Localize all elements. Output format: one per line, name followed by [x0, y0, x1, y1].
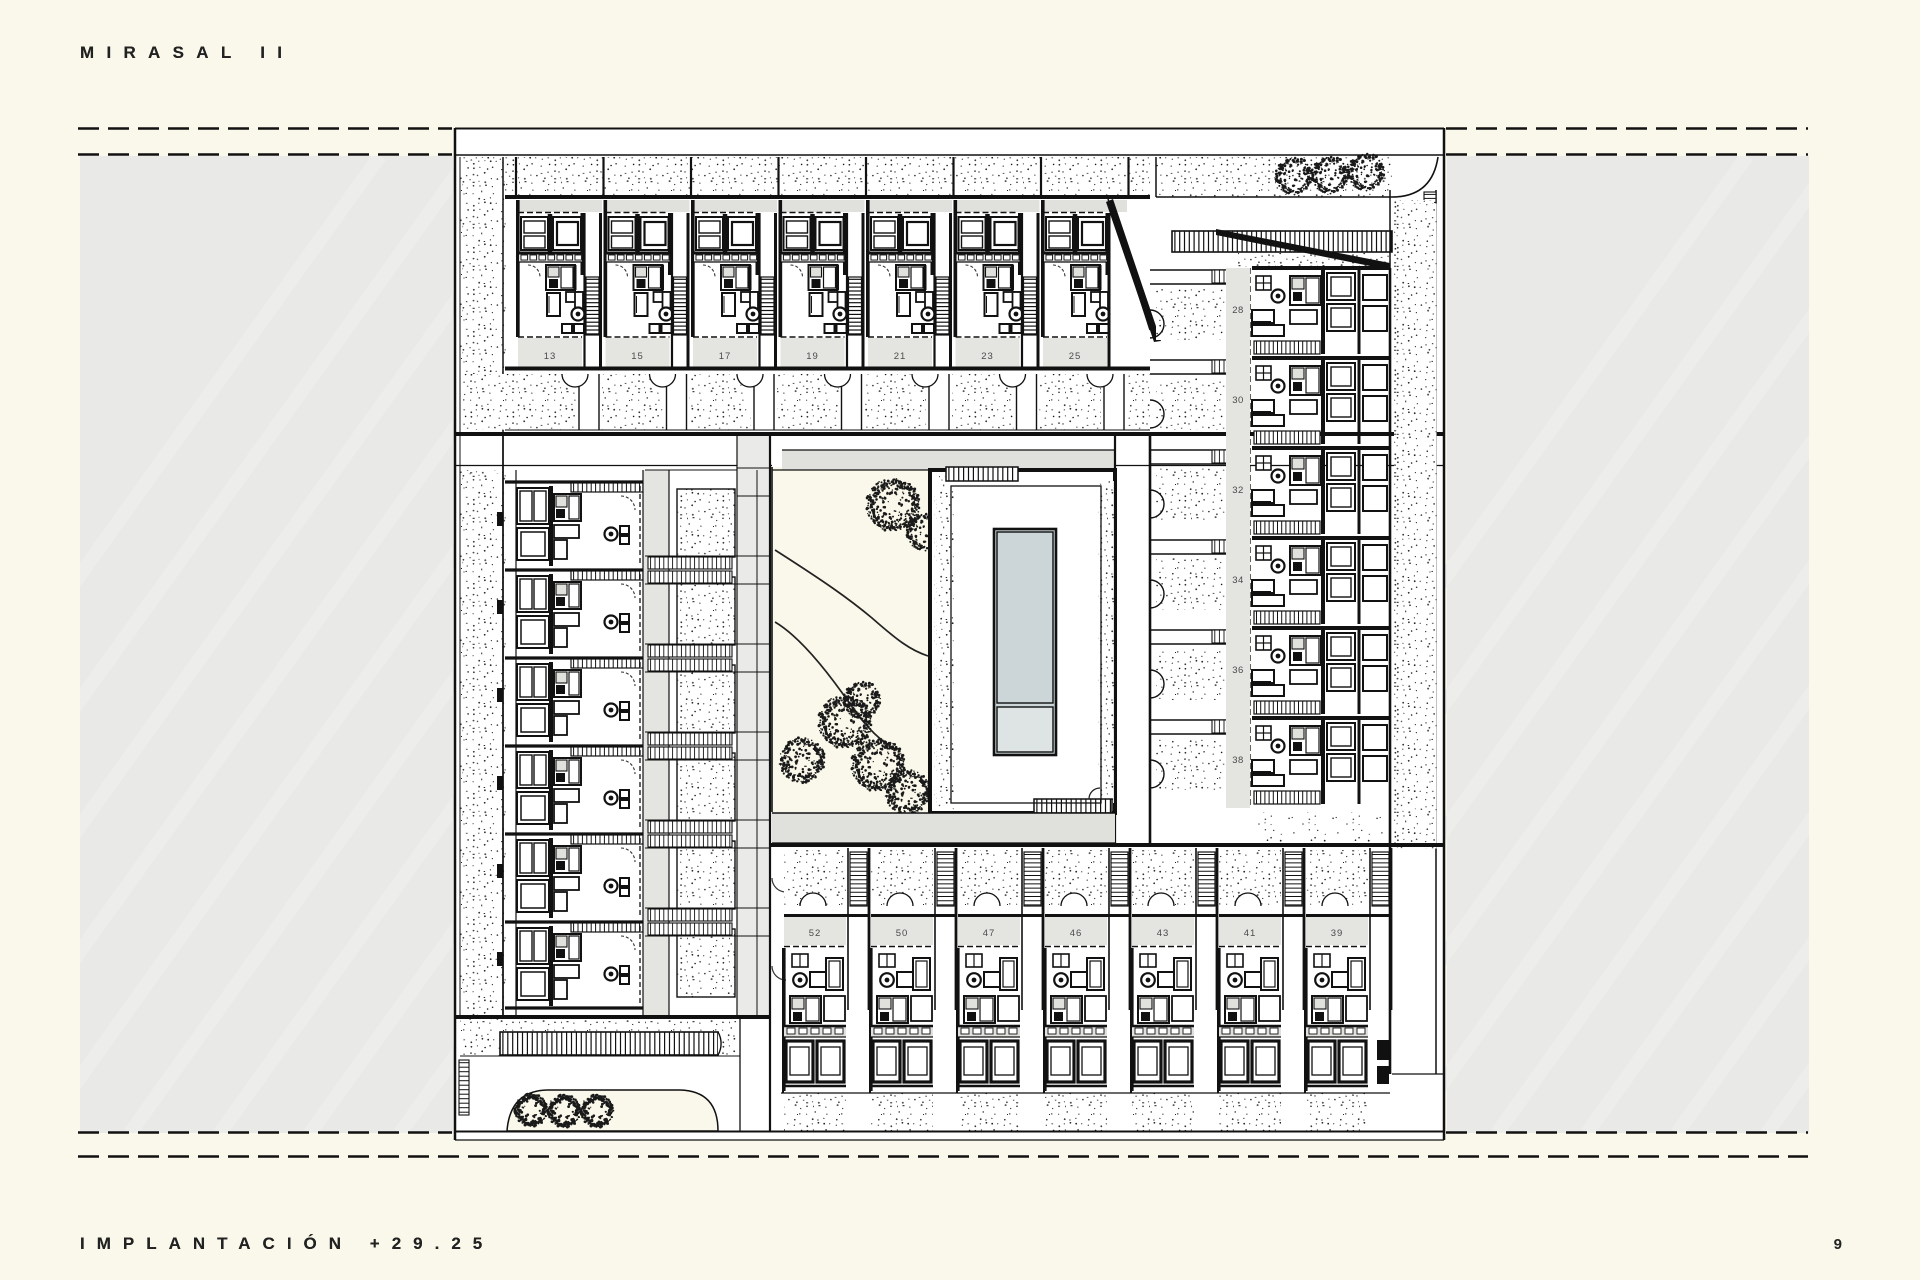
svg-text:19: 19 — [806, 351, 819, 362]
svg-text:47: 47 — [983, 928, 996, 939]
svg-text:38: 38 — [1232, 755, 1244, 766]
svg-text:34: 34 — [1232, 575, 1244, 586]
svg-text:9: 9 — [1834, 1236, 1842, 1253]
svg-text:13: 13 — [544, 351, 557, 362]
svg-text:17: 17 — [719, 351, 732, 362]
svg-text:IMPLANTACIÓN +29.25: IMPLANTACIÓN +29.25 — [80, 1234, 494, 1253]
svg-text:32: 32 — [1232, 485, 1244, 496]
svg-text:52: 52 — [809, 928, 822, 939]
svg-text:28: 28 — [1232, 305, 1244, 316]
svg-text:43: 43 — [1157, 928, 1170, 939]
svg-text:25: 25 — [1069, 351, 1082, 362]
svg-text:36: 36 — [1232, 665, 1244, 676]
svg-text:15: 15 — [631, 351, 644, 362]
svg-text:39: 39 — [1331, 928, 1344, 939]
svg-text:21: 21 — [894, 351, 907, 362]
svg-text:30: 30 — [1232, 395, 1244, 406]
svg-text:50: 50 — [896, 928, 909, 939]
svg-text:23: 23 — [981, 351, 994, 362]
svg-text:46: 46 — [1070, 928, 1083, 939]
svg-text:41: 41 — [1244, 928, 1257, 939]
svg-text:MIRASAL II: MIRASAL II — [80, 43, 294, 62]
